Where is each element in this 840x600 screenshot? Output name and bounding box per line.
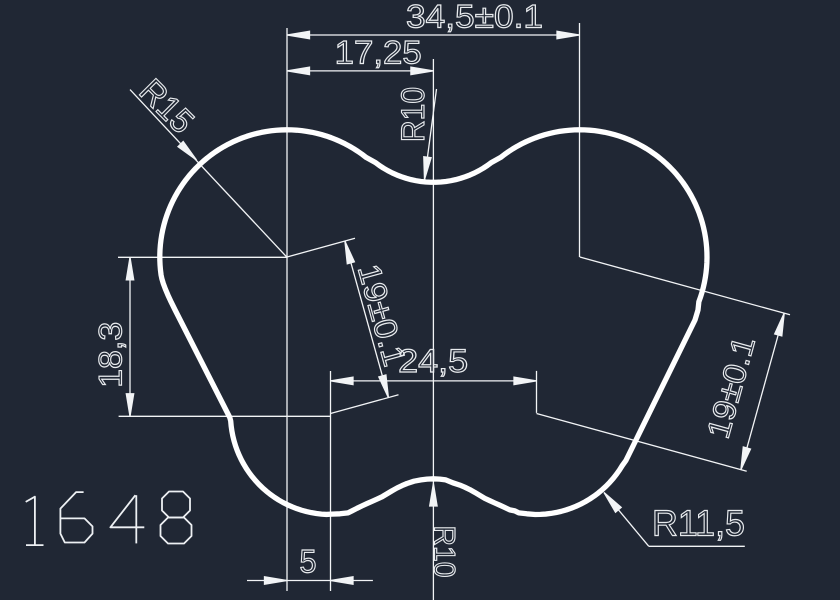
svg-text:5: 5 <box>300 544 317 580</box>
svg-text:R15: R15 <box>132 72 201 141</box>
svg-text:R11,5: R11,5 <box>652 503 745 544</box>
svg-text:34,5±0.1: 34,5±0.1 <box>406 0 543 35</box>
svg-text:19±0.1: 19±0.1 <box>351 260 413 370</box>
svg-text:R10: R10 <box>428 526 461 578</box>
svg-text:R10: R10 <box>395 87 431 142</box>
svg-text:18,3: 18,3 <box>92 322 128 388</box>
svg-text:17,25: 17,25 <box>335 34 422 70</box>
